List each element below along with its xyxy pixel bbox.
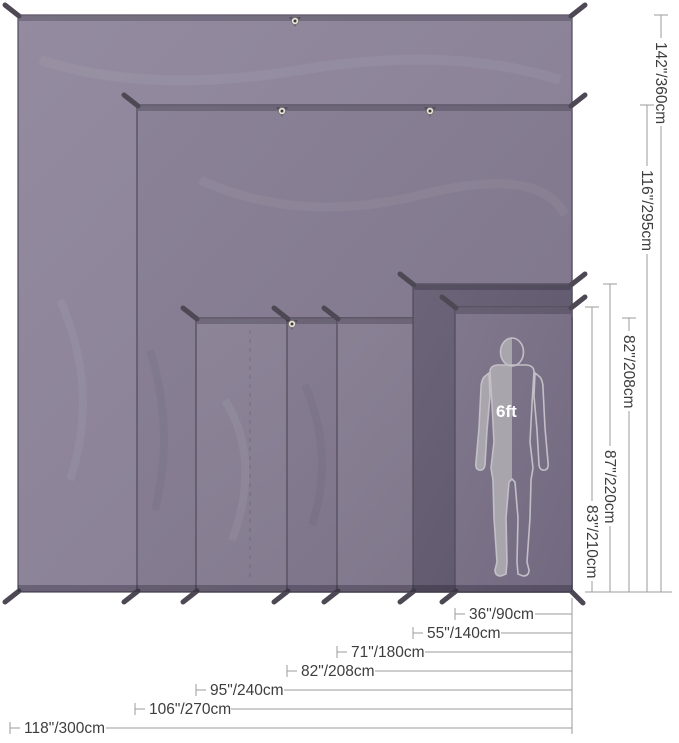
corner-tie [124, 591, 138, 602]
height-dim-82-208: 82"/208cm [620, 318, 638, 592]
height-dimensions: 142"/360cm 116"/295cm 82"/208cm 87"/220c… [583, 15, 672, 592]
corner-tie [442, 591, 456, 602]
width-dim-36-90: 36"/90cm [455, 605, 572, 623]
corner-tie [571, 95, 585, 106]
corner-tie [324, 591, 338, 602]
height-dim-label: 83"/210cm [583, 505, 600, 579]
width-dim-label: 55"/140cm [427, 625, 501, 642]
width-dim-55-140: 55"/140cm [413, 624, 572, 642]
corner-tie [5, 591, 19, 602]
height-dim-label: 87"/220cm [601, 450, 618, 524]
corner-tie [571, 591, 583, 603]
corner-tie [571, 5, 585, 16]
width-dim-71-180: 71"/180cm [337, 643, 572, 661]
height-dim-116-295: 116"/295cm [638, 105, 656, 592]
width-dim-label: 82"/208cm [301, 663, 375, 680]
width-dimensions: 36"/90cm 55"/140cm 71"/180cm 82"/208cm [10, 598, 572, 737]
diagram-canvas: 6ft 142"/360cm 116"/295cm 82"/208cm [0, 0, 679, 743]
width-dim-106-270: 106"/270cm [135, 700, 572, 718]
height-dim-label: 82"/208cm [620, 335, 637, 409]
width-dim-82-208: 82"/208cm [287, 662, 572, 680]
width-dim-118-300: 118"/300cm [10, 719, 572, 737]
tarp-36x83 [442, 297, 585, 602]
corner-tie [183, 591, 197, 602]
height-dim-label: 142"/360cm [652, 42, 669, 124]
width-dim-95-240: 95"/240cm [196, 681, 572, 699]
corner-tie [571, 274, 585, 285]
tarp-size-diagram: 6ft 142"/360cm 116"/295cm 82"/208cm [0, 0, 679, 743]
corner-tie [5, 5, 19, 16]
bottom-hem [18, 585, 572, 592]
width-dim-label: 71"/180cm [351, 644, 425, 661]
height-dim-142-360: 142"/360cm [652, 15, 670, 592]
corner-tie [274, 591, 288, 602]
width-dim-label: 95"/240cm [210, 682, 284, 699]
height-dim-87-220: 87"/220cm [601, 284, 619, 592]
height-dim-label: 116"/295cm [638, 170, 655, 251]
corner-tie [571, 297, 585, 308]
height-dim-83-210: 83"/210cm [583, 307, 601, 592]
person-height-label: 6ft [496, 402, 517, 421]
width-dim-label: 106"/270cm [149, 701, 231, 718]
width-dim-label: 118"/300cm [24, 720, 105, 737]
corner-tie [400, 591, 414, 602]
width-dim-label: 36"/90cm [469, 606, 534, 623]
